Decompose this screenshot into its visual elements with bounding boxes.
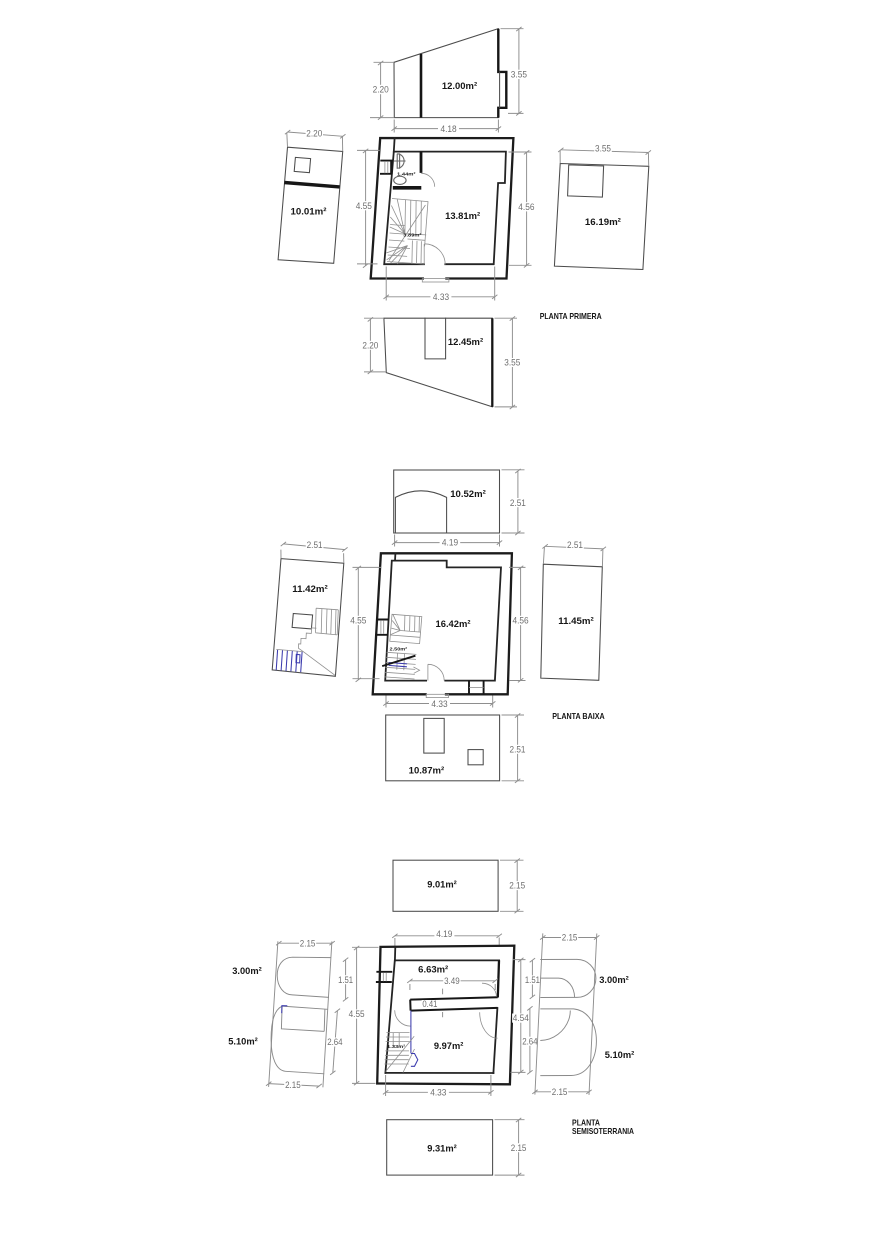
svg-text:1.33m²: 1.33m²	[387, 1044, 405, 1050]
svg-text:10.52m²: 10.52m²	[450, 488, 486, 499]
svg-text:2.20: 2.20	[362, 340, 378, 350]
svg-text:2.15: 2.15	[562, 933, 578, 943]
svg-text:2.51: 2.51	[510, 498, 526, 508]
svg-text:2.15: 2.15	[285, 1080, 301, 1090]
svg-text:4.56: 4.56	[513, 616, 529, 626]
svg-text:4.55: 4.55	[350, 616, 366, 626]
svg-text:2.15: 2.15	[300, 938, 316, 948]
svg-text:2.64: 2.64	[522, 1036, 537, 1046]
svg-text:0.41: 0.41	[422, 999, 437, 1009]
svg-text:10.87m²: 10.87m²	[409, 765, 445, 776]
svg-text:2.15: 2.15	[552, 1087, 568, 1097]
svg-text:SEMISOTERRANIA: SEMISOTERRANIA	[572, 1126, 634, 1136]
svg-text:2.15: 2.15	[511, 1143, 527, 1153]
svg-text:10.01m²: 10.01m²	[291, 205, 327, 216]
svg-text:4.55: 4.55	[356, 201, 372, 211]
svg-text:9.31m²: 9.31m²	[427, 1143, 457, 1154]
svg-text:1.51: 1.51	[525, 975, 540, 985]
svg-text:4.19: 4.19	[436, 929, 452, 939]
svg-text:4.18: 4.18	[441, 124, 457, 134]
svg-text:2.51: 2.51	[307, 540, 323, 550]
svg-text:3.89m²: 3.89m²	[403, 233, 421, 239]
svg-text:12.45m²: 12.45m²	[448, 336, 483, 347]
svg-text:3.55: 3.55	[504, 358, 520, 368]
svg-text:1.44m²: 1.44m²	[397, 172, 416, 178]
svg-text:2.15: 2.15	[509, 881, 525, 891]
svg-text:2.20: 2.20	[373, 85, 389, 95]
svg-text:3.49: 3.49	[444, 976, 460, 986]
svg-text:4.54: 4.54	[513, 1013, 529, 1023]
svg-text:2.50m²: 2.50m²	[390, 646, 408, 652]
svg-text:2.51: 2.51	[567, 540, 583, 550]
svg-text:4.19: 4.19	[442, 538, 458, 548]
svg-text:2.20: 2.20	[306, 129, 322, 139]
svg-text:9.01m²: 9.01m²	[427, 879, 457, 890]
svg-text:PLANTA BAIXA: PLANTA BAIXA	[552, 711, 605, 721]
svg-text:3.55: 3.55	[511, 70, 527, 80]
svg-text:4.33: 4.33	[430, 1088, 446, 1098]
svg-text:9.97m²: 9.97m²	[434, 1040, 464, 1051]
svg-text:2.51: 2.51	[510, 744, 526, 754]
svg-text:4.56: 4.56	[518, 202, 534, 212]
svg-text:3.00m²: 3.00m²	[232, 965, 262, 976]
svg-text:PLANTA PRIMERA: PLANTA PRIMERA	[540, 311, 602, 321]
svg-text:4.33: 4.33	[431, 699, 447, 709]
svg-text:3.55: 3.55	[595, 144, 611, 154]
svg-text:4.33: 4.33	[433, 292, 449, 302]
svg-text:11.42m²: 11.42m²	[292, 583, 328, 594]
svg-text:1.51: 1.51	[338, 975, 353, 985]
svg-text:12.00m²: 12.00m²	[442, 80, 477, 91]
svg-text:3.00m²: 3.00m²	[599, 974, 629, 985]
svg-text:4.55: 4.55	[349, 1009, 365, 1019]
svg-text:5.10m²: 5.10m²	[228, 1035, 258, 1046]
svg-text:11.45m²: 11.45m²	[558, 615, 594, 626]
svg-text:5.10m²: 5.10m²	[605, 1049, 635, 1060]
svg-text:16.19m²: 16.19m²	[585, 216, 621, 227]
svg-text:2.64: 2.64	[327, 1037, 342, 1047]
svg-text:16.42m²: 16.42m²	[436, 618, 471, 629]
svg-text:13.81m²: 13.81m²	[445, 210, 480, 221]
svg-text:6.63m²: 6.63m²	[418, 963, 448, 974]
